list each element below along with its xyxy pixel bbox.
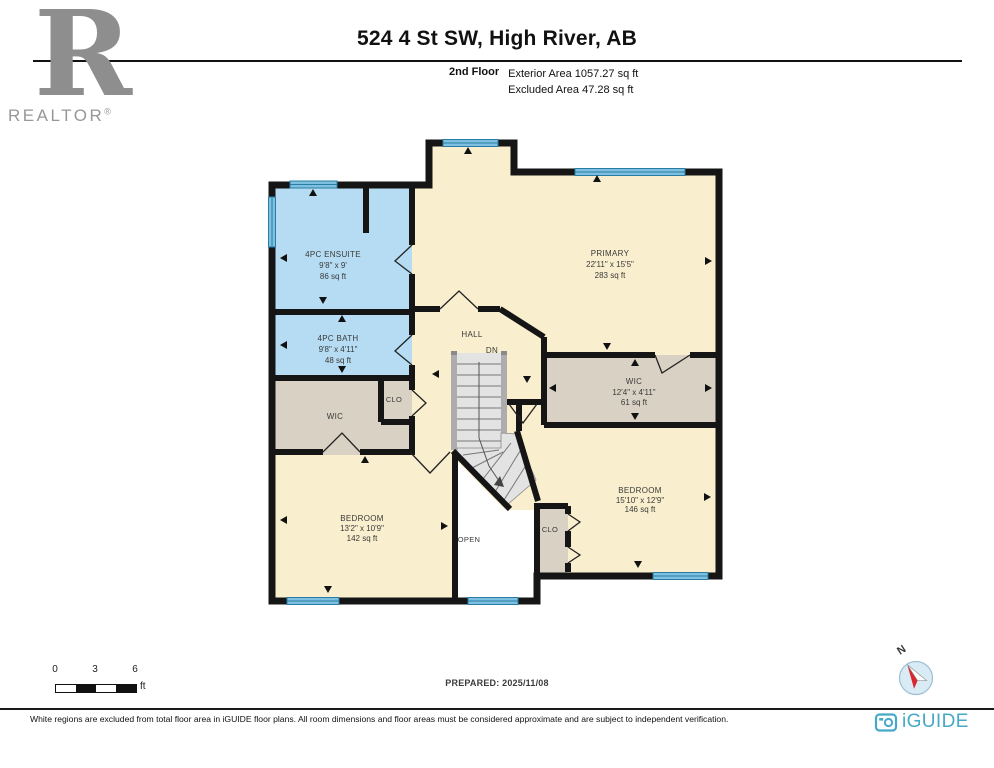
label-ensuite-area: 86 sq ft: [320, 272, 347, 281]
label-bedroom-left-area: 142 sq ft: [347, 534, 378, 543]
exterior-area: Exterior Area 1057.27 sq ft: [508, 66, 638, 82]
label-open: OPEN: [458, 535, 480, 544]
label-primary-name: PRIMARY: [591, 249, 630, 258]
label-stairs-dn: DN: [486, 346, 498, 355]
scale-tick-6: 6: [129, 664, 141, 675]
scale-tick-0: 0: [49, 664, 61, 675]
room-clo-right-area: [537, 503, 568, 575]
iguide-wordmark: iGUIDE: [902, 711, 969, 733]
floor-summary: 2nd Floor Exterior Area 1057.27 sq ft Ex…: [449, 66, 638, 98]
label-wic-right-name: WIC: [626, 377, 642, 386]
label-primary-area: 283 sq ft: [595, 271, 626, 280]
label-clo-left: CLO: [386, 395, 402, 404]
label-bath-name: 4PC BATH: [318, 334, 359, 343]
realtor-logo: R REALTOR®: [8, 6, 118, 126]
label-wic-left: WIC: [327, 412, 343, 421]
label-primary-dims: 22'11" x 15'5": [586, 260, 634, 269]
label-bath-area: 48 sq ft: [325, 356, 352, 365]
floor-label: 2nd Floor: [449, 66, 499, 98]
excluded-area: Excluded Area 47.28 sq ft: [508, 82, 638, 98]
page-title: 524 4 St SW, High River, AB: [0, 27, 994, 51]
realtor-r-icon: R: [34, 6, 118, 102]
label-bath-dims: 9'8" x 4'11": [319, 345, 358, 354]
scale-tick-3: 3: [89, 664, 101, 675]
label-ensuite-dims: 9'8" x 9': [319, 261, 347, 270]
registered-mark: ®: [104, 106, 111, 116]
room-ensuite-area: [272, 185, 412, 312]
disclaimer-text: White regions are excluded from total fl…: [30, 714, 830, 724]
label-wic-right-area: 61 sq ft: [621, 398, 648, 407]
floor-plan: 4PC ENSUITE 9'8" x 9' 86 sq ft 4PC BATH …: [265, 135, 730, 613]
label-clo-right: CLO: [542, 525, 558, 534]
iguide-logo: iGUIDE: [874, 711, 969, 733]
compass-icon: N: [883, 638, 949, 704]
label-bedroom-right-name: BEDROOM: [618, 486, 661, 495]
label-wic-right-dims: 12'4" x 4'11": [612, 388, 655, 397]
label-bedroom-right-area: 146 sq ft: [625, 505, 656, 514]
realtor-wordmark: REALTOR®: [8, 106, 118, 126]
label-ensuite-name: 4PC ENSUITE: [305, 250, 361, 259]
label-bedroom-left-name: BEDROOM: [340, 514, 383, 523]
compass-n-label: N: [895, 643, 908, 657]
realtor-word: REALTOR: [8, 106, 104, 125]
label-bedroom-left-dims: 13'2" x 10'9": [340, 524, 384, 533]
label-bedroom-right-dims: 15'10" x 12'9": [616, 496, 664, 505]
prepared-date: PREPARED: 2025/11/08: [0, 678, 994, 688]
label-hall: HALL: [461, 330, 482, 339]
iguide-camera-icon: [874, 711, 899, 733]
footer-divider: [0, 708, 994, 710]
title-divider: [33, 60, 962, 62]
